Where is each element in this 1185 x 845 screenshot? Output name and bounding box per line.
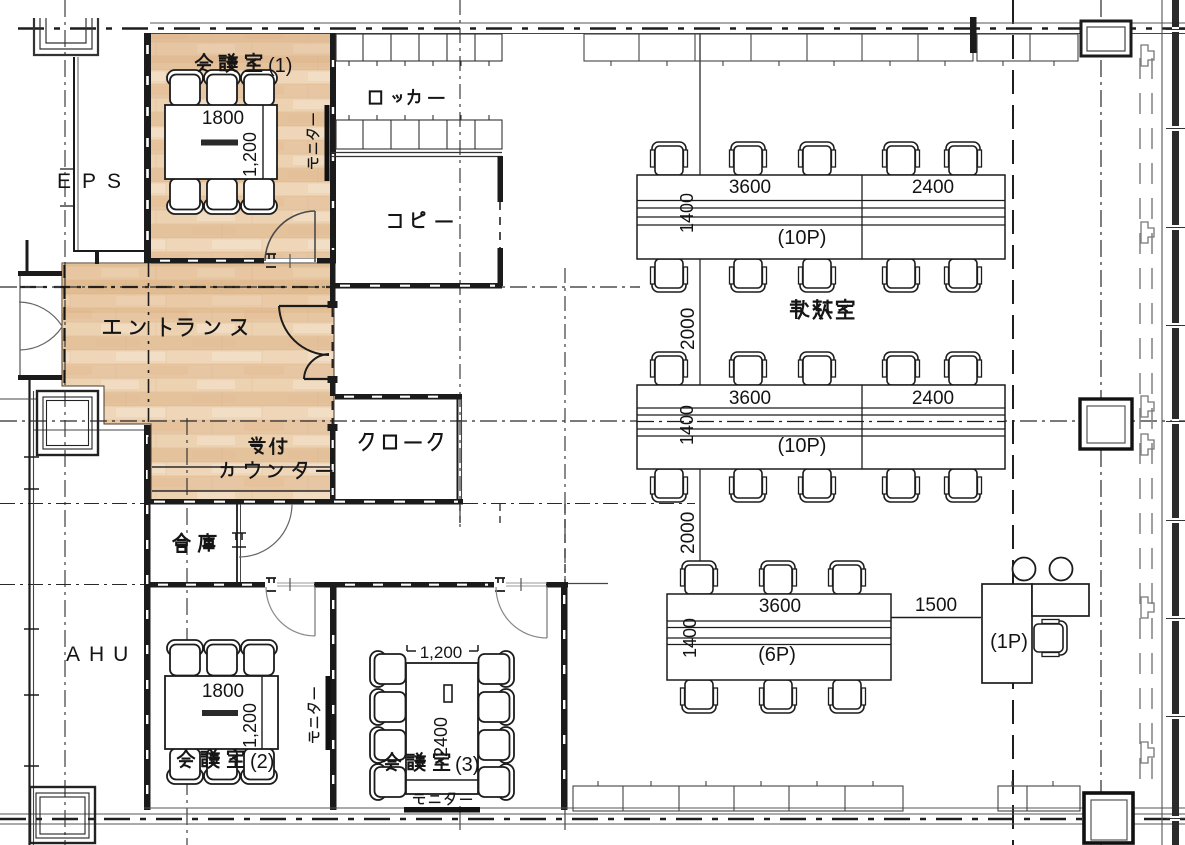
svg-text:(10P): (10P) bbox=[778, 435, 827, 457]
svg-text:2400: 2400 bbox=[912, 388, 954, 409]
svg-text:1,200: 1,200 bbox=[240, 703, 260, 748]
svg-text:1400: 1400 bbox=[680, 618, 700, 658]
svg-text:1400: 1400 bbox=[677, 193, 697, 233]
svg-text:(10P): (10P) bbox=[778, 227, 827, 249]
svg-text:3600: 3600 bbox=[729, 388, 771, 409]
svg-text:2000: 2000 bbox=[678, 512, 699, 554]
svg-text:1400: 1400 bbox=[677, 405, 697, 445]
svg-text:2400: 2400 bbox=[912, 177, 954, 198]
svg-text:2400: 2400 bbox=[431, 717, 451, 757]
svg-text:2000: 2000 bbox=[678, 308, 699, 350]
svg-text:1,200: 1,200 bbox=[420, 643, 463, 662]
svg-text:3600: 3600 bbox=[759, 596, 801, 617]
svg-text:(2): (2) bbox=[250, 751, 274, 773]
svg-text:1500: 1500 bbox=[915, 595, 957, 616]
svg-text:(1P): (1P) bbox=[990, 631, 1028, 653]
svg-text:EPS: EPS bbox=[57, 170, 132, 193]
svg-text:1800: 1800 bbox=[202, 108, 244, 129]
svg-text:(1): (1) bbox=[268, 55, 292, 77]
svg-text:1800: 1800 bbox=[202, 681, 244, 702]
svg-text:(6P): (6P) bbox=[758, 644, 796, 666]
svg-text:1,200: 1,200 bbox=[240, 132, 260, 177]
svg-text:(3): (3) bbox=[455, 754, 479, 776]
svg-text:3600: 3600 bbox=[729, 177, 771, 198]
svg-text:AHU: AHU bbox=[66, 643, 137, 666]
